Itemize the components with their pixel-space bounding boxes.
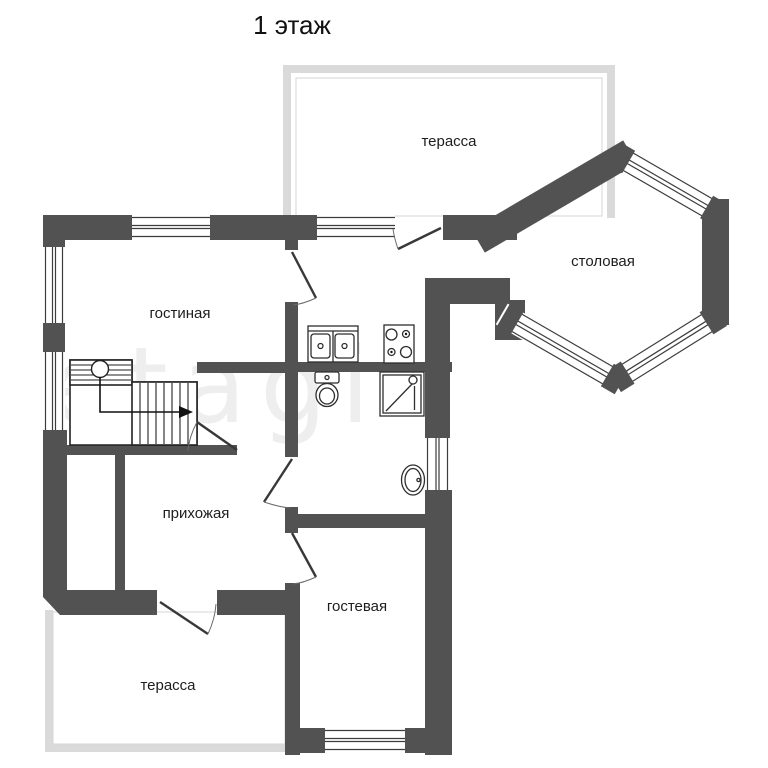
door-hallway-terrace xyxy=(160,602,216,634)
window-dining-ne xyxy=(608,143,727,227)
kitchen-sink-icon xyxy=(308,326,358,362)
room-label-guest: гостевая xyxy=(327,598,387,615)
window-dining-sw xyxy=(495,303,628,395)
newel-post-icon xyxy=(92,361,109,378)
washbasin-icon xyxy=(402,465,425,495)
room-label-terrace-bottom: терасса xyxy=(140,677,196,694)
window-guest-bottom xyxy=(325,728,405,753)
door-hallway-washroom xyxy=(264,459,292,508)
room-label-hallway: прихожая xyxy=(163,505,230,522)
floor-title: 1 этаж xyxy=(253,10,331,40)
door-living-kitchen xyxy=(292,252,316,305)
room-label-terrace-top: терасса xyxy=(421,133,477,150)
window-left-1 xyxy=(43,247,65,323)
window-top-living xyxy=(132,215,210,240)
toilet-icon xyxy=(315,372,339,407)
window-top-kitchen xyxy=(317,215,395,240)
room-label-living: гостиная xyxy=(150,305,211,322)
floor-plan-canvas: etagi xyxy=(0,0,768,768)
window-left-2 xyxy=(43,352,65,430)
door-hallway-guest xyxy=(292,533,316,584)
window-washroom xyxy=(425,438,450,490)
window-dining-se xyxy=(605,304,726,393)
room-label-dining: столовая xyxy=(571,253,635,270)
walls xyxy=(43,152,729,755)
floor-plan: etagi xyxy=(0,0,768,768)
stove-icon xyxy=(384,325,414,363)
door-kitchen-terrace xyxy=(393,228,441,249)
shower-icon xyxy=(380,372,424,416)
